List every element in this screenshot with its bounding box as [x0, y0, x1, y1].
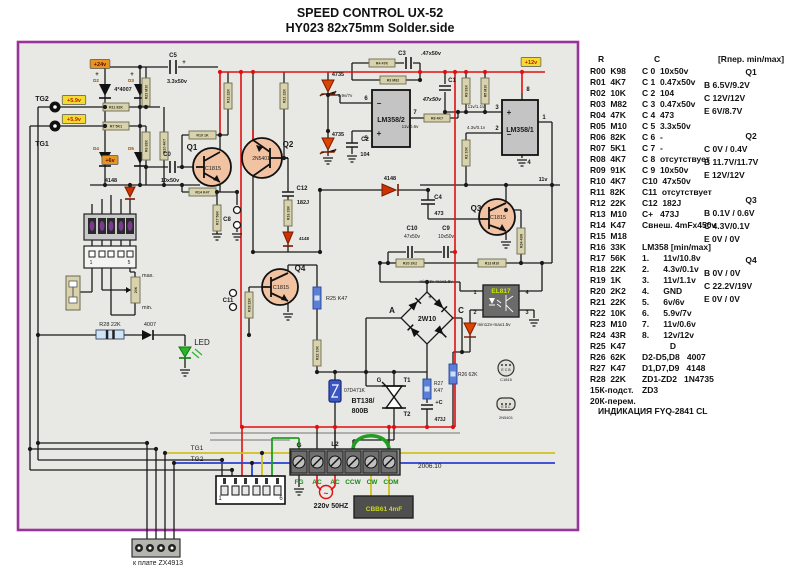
parts-row: R07 5K1	[590, 143, 636, 154]
schematic-label: 5.9v/7v	[338, 93, 353, 98]
schematic-label: 11v	[539, 177, 549, 183]
schematic-label: C11	[223, 298, 234, 304]
schematic-label: C	[458, 306, 464, 315]
svg-text:R16 33K: R16 33K	[286, 206, 290, 221]
schematic-label: +	[182, 60, 186, 66]
schematic-label: C1	[448, 78, 456, 84]
resistor: R4 47K	[369, 59, 395, 67]
connector-6pin	[216, 476, 285, 504]
svg-text:R10 4K7: R10 4K7	[162, 139, 166, 153]
parts-row: R14 K47	[590, 220, 636, 231]
resistor: R12 22K	[224, 83, 232, 109]
q-block-q1: Q1B 6.5V/9.2VC 12V/12VE 6V/8.7V	[704, 66, 798, 118]
voltage-tag: +5.9v	[62, 115, 86, 124]
svg-text:20K: 20K	[134, 286, 138, 293]
svg-text:R23 M10: R23 M10	[144, 85, 148, 100]
svg-text:R19 1K: R19 1K	[196, 133, 209, 137]
parts-row: R04 47K	[590, 110, 636, 121]
schematic-label: 220v 50HZ	[314, 503, 349, 510]
parts-row: R20 2K2	[590, 286, 636, 297]
svg-text:R8 4K7: R8 4K7	[431, 116, 443, 120]
schematic-label: R27	[434, 381, 443, 387]
schematic-label: R25 K47	[326, 296, 347, 302]
indication-note: ИНДИКАЦИЯ FYQ-2841 CL	[598, 406, 707, 416]
schematic-label: C1815	[205, 166, 221, 172]
schematic-label: C5	[169, 53, 177, 59]
schematic-label: Q3	[471, 204, 482, 213]
resistor: R22 10K	[313, 340, 321, 366]
schematic-label: BT138/	[352, 398, 375, 405]
parts-row: R03 M82	[590, 99, 636, 110]
resistor: R19 1K	[189, 131, 216, 139]
schematic-label: 11v/0.6v	[402, 124, 419, 129]
schematic-label: C10	[406, 226, 418, 232]
schematic-label: +	[507, 108, 512, 117]
parts-row: R19 1K	[590, 275, 636, 286]
resistor	[313, 287, 321, 309]
schematic-label: +	[377, 129, 382, 138]
varistor-07d471k	[329, 380, 341, 402]
svg-text:R14 K47: R14 K47	[195, 190, 209, 194]
parts-row: D2-D5,D8 4007	[642, 352, 716, 363]
svg-text:+5.9v: +5.9v	[67, 98, 82, 104]
trimmer-switch	[66, 276, 80, 310]
parts-row: R05 M10	[590, 121, 636, 132]
schematic-label: K47	[434, 388, 443, 394]
svg-text:R24 43R: R24 43R	[519, 234, 523, 249]
resistor: R2 10K	[462, 140, 470, 166]
c-column-header: C	[654, 54, 660, 64]
schematic-label: E C B	[501, 368, 511, 372]
schematic-label: COM	[383, 479, 398, 486]
parts-row: D1,D7,D9 4148	[642, 363, 716, 374]
schematic-label: min13v-max1.8v	[419, 279, 453, 284]
schematic-label: C0	[163, 152, 171, 158]
svg-text:R11 82K: R11 82K	[109, 105, 123, 109]
svg-text:R2 10K: R2 10K	[464, 147, 468, 160]
schematic-label: 10x50v	[438, 234, 455, 240]
schematic-label: +	[130, 72, 134, 78]
parts-row: 7. 11v/0.6v	[642, 319, 716, 330]
parts-row: R02 10K	[590, 88, 636, 99]
schematic-label: −	[507, 130, 512, 139]
schematic-label: R26 62K	[458, 372, 478, 378]
schematic-label: 2W10	[418, 316, 436, 323]
svg-text:R6 82K: R6 82K	[144, 140, 148, 153]
schematic-label: 4148	[105, 178, 117, 184]
parts-row: R25 K47	[590, 341, 636, 352]
svg-text:R3 M82: R3 M82	[387, 78, 400, 82]
schematic-label: C8	[223, 217, 231, 223]
parts-row: R21 22K	[590, 297, 636, 308]
parts-row: R01 4K7	[590, 77, 636, 88]
parts-row: R06 82K	[590, 132, 636, 143]
schematic-label: C3	[398, 51, 406, 57]
schematic-label: TG1	[191, 445, 204, 452]
schematic-label: 2N5401	[252, 156, 270, 162]
schematic-label: 1	[473, 290, 476, 296]
svg-text:R13 M10: R13 M10	[485, 261, 500, 265]
schematic-label: ~	[324, 489, 329, 498]
voltage-tag: +12v	[521, 58, 541, 67]
voltage-tag: +6v	[102, 156, 118, 165]
schematic-label: C4	[434, 195, 442, 201]
schematic-label: +	[95, 72, 99, 78]
svg-text:+5.9v: +5.9v	[67, 117, 82, 123]
title-block: SPEED CONTROL UX-52 HY023 82x75mm Solder…	[210, 6, 530, 36]
schematic-label: 5	[128, 260, 131, 266]
parts-row: R27 K47	[590, 363, 636, 374]
resistor: R9 91K	[462, 78, 470, 104]
parts-row: R22 10K	[590, 308, 636, 319]
svg-text:R21 22K: R21 22K	[282, 89, 286, 104]
resistor	[423, 379, 431, 399]
schematic-label: TG2	[35, 96, 49, 103]
resistor: 20K	[131, 277, 140, 303]
schematic-label: A	[389, 306, 395, 315]
svg-text:R4 47K: R4 47K	[376, 61, 389, 65]
resistor: R18 22K	[245, 292, 253, 318]
svg-text:R17 56K: R17 56K	[215, 211, 219, 226]
schematic-label: 2006.10	[418, 463, 442, 470]
voltage-tag: +24v	[90, 60, 110, 69]
schematic-label: D3	[128, 78, 134, 83]
schematic-label: D4	[93, 146, 99, 151]
parts-row: R00 K98	[590, 66, 636, 77]
resistor: R14 K47	[189, 188, 216, 196]
terminal-block	[290, 449, 400, 475]
schematic-label: 47x50v	[422, 97, 442, 103]
schematic-label: AC	[330, 479, 340, 486]
r-column-header: R	[598, 54, 604, 64]
parts-row: 8. 12v/12v	[642, 330, 716, 341]
schematic-label: 473	[434, 211, 443, 217]
schematic-label: max.	[142, 273, 154, 279]
q-block-q4: Q4B 0V / 0VC 22.2V/19VE 0V / 0V	[704, 254, 798, 306]
parts-row: R08 4K7	[590, 154, 636, 165]
parts-row: R12 22K	[590, 198, 636, 209]
schematic-label: LM358/2	[377, 117, 405, 124]
schematic-label: Q2	[283, 140, 294, 149]
schematic-label: 47x50v	[404, 234, 421, 240]
parts-row: ZD3	[642, 385, 716, 396]
parts-row: R11 82K	[590, 187, 636, 198]
parts-row: ZD1-ZD2 1N4735	[642, 374, 716, 385]
resistor: R3 M82	[380, 76, 406, 84]
schematic-label: 182J	[297, 200, 309, 206]
parts-row: R16 33K	[590, 242, 636, 253]
schematic-label: L2	[331, 441, 339, 448]
schematic-label: CCW	[345, 479, 361, 486]
schematic-label: CBB61 4mF	[366, 506, 403, 513]
svg-text:R20 2K2: R20 2K2	[403, 261, 417, 265]
svg-text:R18 22K: R18 22K	[247, 298, 251, 313]
svg-text:+6v: +6v	[105, 158, 115, 164]
schematic-label: 3	[525, 310, 528, 316]
parts-row: R15 M18	[590, 231, 636, 242]
schematic-label: 4148	[299, 236, 310, 241]
schematic-label: TG1	[35, 141, 49, 148]
r-column: R00 K98R01 4K7R02 10KR03 M82R04 47KR05 M…	[590, 66, 636, 407]
connector-zx4913	[132, 539, 180, 557]
resistor	[96, 330, 124, 339]
parts-row: R13 M10	[590, 209, 636, 220]
schematic-label: 10x50v	[161, 178, 180, 184]
schematic-label: D5	[128, 146, 134, 151]
svg-text:R9 91K: R9 91K	[464, 85, 468, 98]
resistor: R24 43R	[517, 228, 525, 254]
schematic-label: 4007	[144, 322, 156, 328]
parts-row: R28 22K	[590, 374, 636, 385]
parts-row: R26 62K	[590, 352, 636, 363]
resistor	[449, 364, 457, 384]
parts-row: R24 43R	[590, 330, 636, 341]
parts-row: 15К-подст.	[590, 385, 636, 396]
schematic-label: 4.3v/0.1v	[467, 125, 486, 130]
parts-row: R23 M10	[590, 319, 636, 330]
resistor: R5 M10	[481, 78, 489, 104]
schematic-label: 1	[90, 260, 93, 266]
schematic-label: +	[428, 295, 432, 301]
schematic-label: 4735	[332, 132, 344, 138]
q-block-q2: Q2C 0V / 0.4VB 11.7V/11.7VE 12V/12V	[704, 130, 798, 182]
schematic-label: D2	[93, 78, 99, 83]
svg-text:R12 22K: R12 22K	[226, 89, 230, 104]
schematic-label: 104	[360, 152, 370, 158]
schematic-label: LED	[194, 338, 210, 347]
speed-control-schematic-page: R11 82KR7 5K1R19 1KR14 K47R4 47KR3 M82R8…	[0, 0, 800, 581]
parts-row: R09 91K	[590, 165, 636, 176]
schematic-label: 11v/1.1v	[468, 104, 485, 109]
schematic-label: Q4	[295, 264, 306, 273]
schematic-label: к плате ZX4913	[133, 560, 183, 567]
schematic-label: C9	[442, 226, 450, 232]
schematic-label: 800B	[352, 408, 369, 415]
parts-table: R C [Rпер. min/max] R00 K98R01 4K7R02 10…	[586, 50, 798, 430]
schematic-label: AC	[312, 479, 322, 486]
parts-row: D	[642, 341, 704, 352]
schematic-label: .47x50v	[421, 51, 442, 57]
schematic-label: −	[377, 99, 382, 108]
schematic-label: FG	[294, 479, 303, 486]
page-title-line2: HY023 82x75mm Solder.side	[210, 21, 530, 36]
schematic-label: Q1	[187, 143, 198, 152]
q-column-header: [Rпер. min/max]	[704, 54, 798, 64]
schematic-label: TG2	[191, 456, 204, 463]
schematic-label: min.	[142, 305, 153, 311]
schematic-label: 3.3x50v	[167, 79, 188, 85]
schematic-label: 473J	[434, 417, 445, 423]
schematic-label: C12	[296, 186, 308, 192]
parts-row: R17 56K	[590, 253, 636, 264]
schematic-label: 07D471K	[344, 388, 366, 394]
schematic-label: min12v-max1.5v	[477, 322, 511, 327]
schematic-label: 2	[473, 310, 476, 316]
resistor: R20 2K2	[396, 259, 424, 267]
schematic-label: +C	[435, 400, 442, 406]
page-title-line1: SPEED CONTROL UX-52	[210, 6, 530, 21]
schematic-label: 4*4007	[114, 87, 131, 93]
resistor: R17 56K	[213, 205, 221, 231]
schematic-label: R28 22K	[99, 322, 121, 328]
parts-row: R18 22K	[590, 264, 636, 275]
schematic-label: T1	[403, 378, 411, 384]
schematic-label: 4735	[332, 72, 344, 78]
resistor: R16 33K	[284, 200, 292, 226]
svg-text:+24v: +24v	[94, 62, 107, 68]
resistor: R23 M10	[142, 78, 150, 106]
svg-text:R22 10K: R22 10K	[315, 346, 319, 361]
resistor: R6 82K	[142, 132, 150, 160]
resistor: R8 4K7	[424, 114, 450, 122]
schematic-label: EL817	[491, 288, 511, 295]
q-block-q3: Q3B 0.1V / 0.6VC 4.3V/0.1VE 0V / 0V	[704, 194, 798, 246]
connector-5pin-purple	[84, 214, 136, 240]
schematic-label: CW	[367, 479, 379, 486]
resistor: R21 22K	[280, 83, 288, 109]
schematic-label: C1815	[500, 377, 513, 382]
svg-text:R7 5K1: R7 5K1	[110, 124, 122, 128]
schematic-label: 4148	[384, 176, 396, 182]
voltage-tag: +5.9v	[62, 96, 86, 105]
schematic-label: T2	[403, 412, 411, 418]
schematic-label: E B C	[501, 405, 511, 409]
schematic-label: G	[296, 442, 301, 449]
schematic-label: C1815	[273, 285, 289, 291]
schematic-label: C1815	[490, 215, 506, 221]
svg-text:+12v: +12v	[525, 60, 538, 66]
schematic-label: G	[377, 378, 382, 384]
schematic-label: 2N5401	[499, 415, 514, 420]
svg-text:R5 M10: R5 M10	[483, 85, 487, 98]
parts-row: 6. 5.9v/7v	[642, 308, 716, 319]
parts-row: R10 4K7	[590, 176, 636, 187]
resistor: R13 M10	[478, 259, 506, 267]
